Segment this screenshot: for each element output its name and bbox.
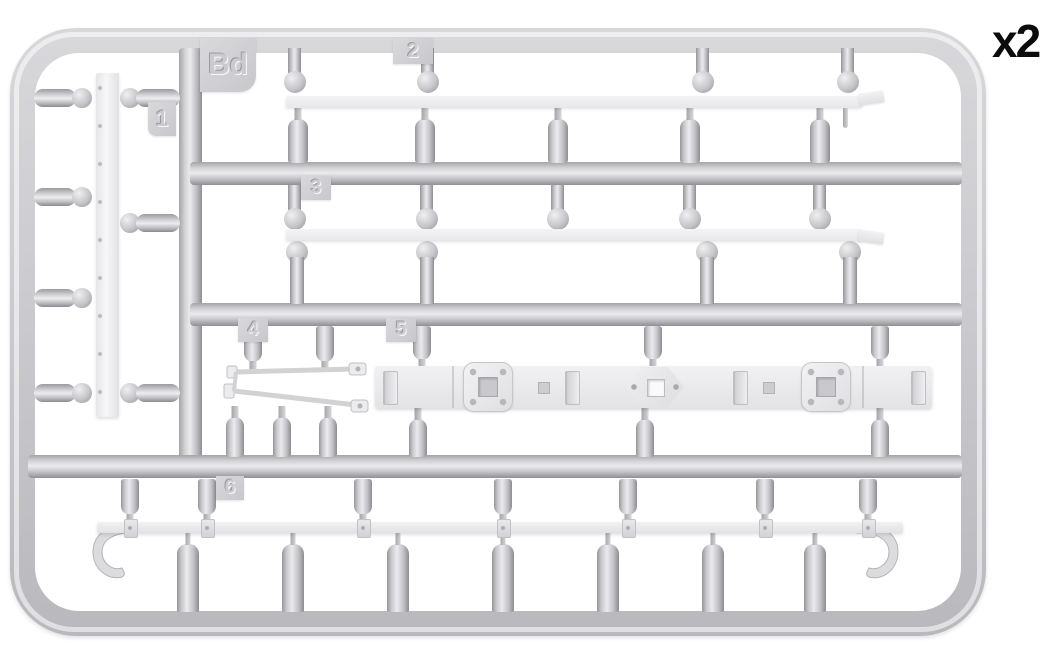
sprue-gate [679,185,701,229]
bar-clamp [201,519,215,538]
sprue-gate [619,479,637,515]
sprue-gate [810,119,830,163]
sprue-gate [804,544,826,612]
part-label-3: 3 [301,176,331,200]
sprue-gate [282,544,304,612]
sprue-gate [692,48,714,94]
beam-slot [565,371,580,405]
sprue-gate [416,185,438,229]
square-hole [647,379,665,397]
runner-horizontal-3 [28,455,962,478]
sprue-gate [492,544,514,612]
sprue-gate [636,419,654,457]
sprue-gate [34,383,98,403]
small-square-boss [763,382,775,394]
bar-clamp [124,519,138,538]
sprue-gate [680,119,700,163]
sprue-gate [34,288,98,308]
bar-clamp [622,519,636,538]
bar-clamp [759,519,773,538]
small-square-boss [538,382,550,394]
sprue-code-tag: Bd [200,38,256,92]
part-3-leaf-spring [286,229,862,240]
sprue-gate [226,417,244,457]
quantity-label: x2 [992,14,1039,68]
part-label-1: 1 [148,102,176,136]
sprue-gate [871,326,889,360]
sprue-gate [118,213,180,233]
beam-slot [383,371,398,405]
sprue-gate [354,479,372,515]
sprue-gate [34,88,98,108]
sprue-gate [756,479,774,515]
sprue-diagram: x2 [0,0,1052,646]
part-label-4: 4 [238,318,268,342]
runner-horizontal-2 [190,303,962,326]
sprue-gate [548,119,568,163]
sprue-gate [198,479,216,515]
sprue-gate [809,185,831,229]
beam-slot [733,371,748,405]
part-5-chassis-beam [375,366,932,408]
sprue-gate [702,544,724,612]
mounting-plate [801,362,851,412]
sprue-gate [871,419,889,457]
sprue-gate [177,544,199,612]
bar-clamp [497,519,511,538]
beam-seam [452,366,454,408]
sprue-gate [121,479,139,515]
bar-clamp [357,519,371,538]
part-2-leaf-spring [286,96,862,107]
sprue-gate [118,383,180,403]
beam-slot [911,371,926,405]
part-label-5: 5 [386,318,416,342]
part-label-6: 6 [216,476,244,500]
spring-pin [843,108,848,128]
mounting-plate [463,362,513,412]
runner-vertical [179,48,202,476]
sprue-gate [839,241,861,304]
sprue-gate [837,48,859,94]
sprue-gate [644,326,662,360]
part-label-2: 2 [393,38,433,64]
sprue-gate [416,241,438,304]
sprue-gate [696,241,718,304]
sprue-gate [34,187,98,207]
part-6-tow-bar [97,522,903,533]
diamond-plate [626,367,684,407]
sprue-gate [288,119,308,163]
sprue-gate [494,479,512,515]
sprue-gate [409,419,427,457]
sprue-gate [316,326,334,362]
sprue-gate [286,241,308,304]
sprue-gate [273,417,291,457]
part-1-rail-strip [96,73,119,417]
square-hole [478,377,498,397]
sprue-gate [284,48,306,94]
beam-seam [862,366,864,408]
sprue-gate [415,119,435,163]
bar-clamp [862,519,876,538]
square-hole [816,377,836,397]
sprue-gate [597,544,619,612]
sprue-gate [859,479,877,515]
sprue-gate [319,417,337,457]
sprue-gate [547,185,569,229]
part-4-tow-bracket [222,362,377,414]
sprue-gate [387,544,409,612]
